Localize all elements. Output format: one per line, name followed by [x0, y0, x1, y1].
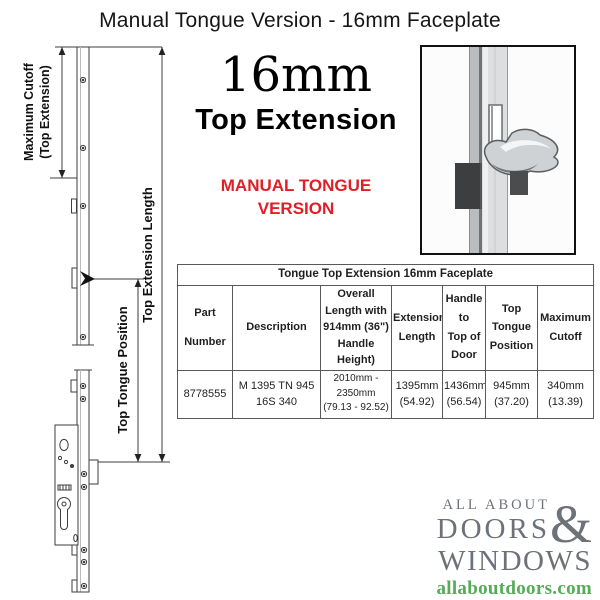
col-header-description: Description — [233, 285, 321, 370]
table-title: Tongue Top Extension 16mm Faceplate — [178, 265, 594, 286]
faceplate-rod-upper — [77, 47, 89, 345]
keeper-bracket — [72, 580, 77, 592]
arrow-up — [59, 47, 66, 55]
product-photo — [420, 45, 576, 255]
hero-size-text: 16mm — [186, 50, 406, 100]
col-header-overall-length: Overall Length with 914mm (36") Handle H… — [321, 285, 392, 370]
col-header-handle-to-top: Handle to Top of Door — [443, 285, 486, 370]
spec-table: Tongue Top Extension 16mm Faceplate Part… — [177, 264, 594, 419]
hero-variant-line1: MANUAL TONGUE — [186, 175, 406, 198]
cell-part-number: 8778555 — [178, 370, 233, 418]
col-header-extension-length: Extension Length — [392, 285, 443, 370]
logo-website-url: allaboutdoors.com — [372, 579, 592, 598]
keeper-block — [455, 163, 482, 209]
logo-top: ALL ABOUT DOORS & — [372, 498, 592, 545]
tongue-case — [89, 460, 98, 484]
seam — [479, 47, 482, 253]
hero-variant-line2: VERSION — [186, 198, 406, 221]
keeper-bracket — [71, 380, 77, 392]
cell-description: M 1395 TN 945 16S 340 — [233, 370, 321, 418]
cell-tongue-position: 945mm (37.20) — [486, 370, 538, 418]
logo-ampersand: & — [550, 505, 592, 544]
label-max-cutoff-line1: Maximum Cutoff — [22, 62, 36, 161]
col-header-tongue-position: Top Tongue Position — [486, 285, 538, 370]
keeper-bracket — [72, 545, 77, 555]
cell-extension-length: 1395mm (54.92) — [392, 370, 443, 418]
table-header-row: Part Number Description Overall Length w… — [178, 285, 594, 370]
hero-variant-text: MANUAL TONGUE VERSION — [186, 175, 406, 221]
company-logo: ALL ABOUT DOORS & WINDOWS allaboutdoors.… — [372, 498, 592, 599]
logo-doors: DOORS — [437, 515, 550, 544]
keeper-bracket — [72, 199, 77, 213]
logo-left-stack: ALL ABOUT DOORS — [437, 498, 550, 545]
hero-product-name: Top Extension — [186, 104, 406, 137]
table-row: 8778555 M 1395 TN 945 16S 340 2010mm - 2… — [178, 370, 594, 418]
cell-overall-length: 2010mm - 2350mm (79.13 - 92.52) — [321, 370, 392, 418]
tongue-slot — [489, 105, 502, 145]
euro-cylinder-stem — [61, 509, 68, 530]
label-extension-length: Top Extension Length — [140, 187, 155, 323]
logo-all-about: ALL ABOUT — [437, 498, 550, 513]
product-photo-image — [422, 47, 574, 253]
label-max-cutoff-line2: (Top Extension) — [38, 65, 52, 159]
label-tongue-position: Top Tongue Position — [115, 306, 130, 433]
product-spec-page: Manual Tongue Version - 16mm Faceplate — [0, 0, 600, 600]
cell-maximum-cutoff: 340mm (13.39) — [538, 370, 594, 418]
tongue-keeper — [72, 268, 77, 288]
page-title: Manual Tongue Version - 16mm Faceplate — [0, 9, 600, 33]
handle-hole — [60, 439, 68, 450]
logo-windows: WINDOWS — [372, 547, 592, 576]
arrow-down — [135, 454, 142, 462]
col-header-part-number: Part Number — [178, 285, 233, 370]
arrow-down — [59, 170, 66, 178]
latch-block — [510, 171, 528, 195]
col-header-maximum-cutoff: Maximum Cutoff — [538, 285, 594, 370]
arrow-up — [159, 47, 166, 55]
faceplate-rod-lower — [77, 370, 89, 592]
hero-block: 16mm Top Extension MANUAL TONGUE VERSION — [186, 50, 406, 221]
arrow-down — [159, 454, 166, 462]
hardware-diagram: Maximum Cutoff (Top Extension) Top Exten… — [0, 40, 180, 600]
cell-handle-to-top: 1436mm (56.54) — [443, 370, 486, 418]
